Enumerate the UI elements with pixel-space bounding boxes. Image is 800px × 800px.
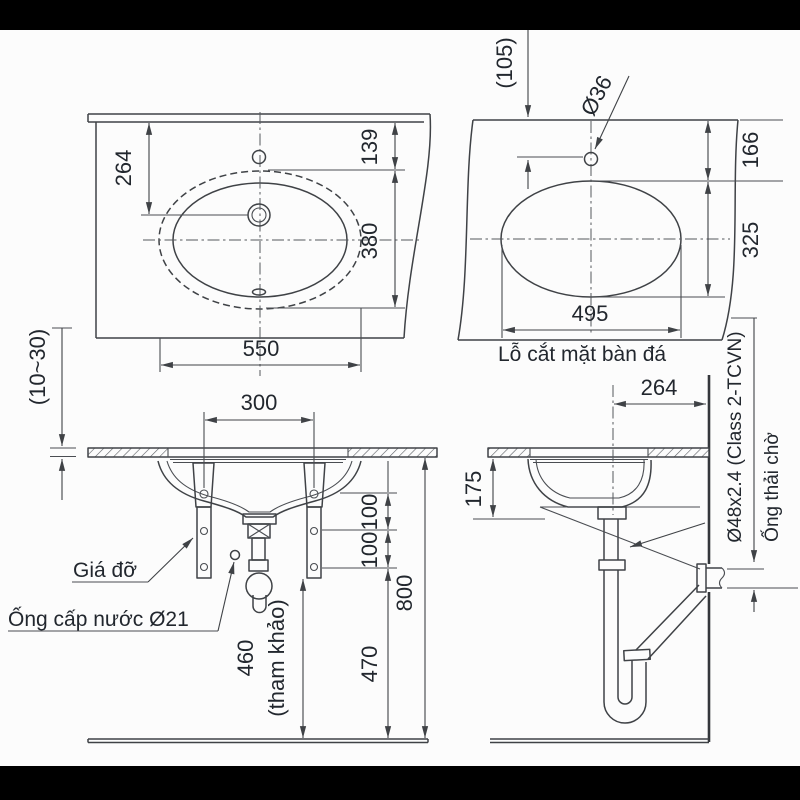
dim-bowl-below-counter: 175 — [461, 471, 486, 508]
side-view: 264 175 Ø48x2.4 (Class 2-TCVN) Ống thải … — [461, 318, 798, 743]
dim-counter-thickness: (10~30) — [25, 329, 50, 405]
waste-pipe-spec: Ø48x2.4 (Class 2-TCVN) — [725, 331, 746, 542]
plan-view: 264 139 380 550 — [88, 112, 430, 376]
break-line-right — [404, 114, 430, 338]
top-black-bar — [0, 0, 800, 30]
dim-ref-height: 460 — [233, 640, 258, 677]
dim-edge-to-drain: 264 — [111, 150, 136, 187]
counter-slab-section — [488, 448, 709, 457]
dim-bowl-depth: 380 — [357, 223, 382, 260]
floor-line — [490, 739, 709, 743]
waste-pipe-stub — [697, 564, 725, 592]
dim-hole-depth: 325 — [738, 222, 763, 259]
dim-edge-offset: (105) — [492, 37, 517, 88]
label-supply-leader — [218, 562, 234, 631]
cutout-caption: Lỗ cắt mặt bàn đá — [498, 343, 666, 366]
ext-lines — [727, 569, 798, 588]
bottom-black-bar — [0, 766, 800, 800]
break-line-left — [458, 120, 473, 340]
sink-bowl-side — [528, 459, 651, 507]
drain-hole — [248, 204, 270, 226]
sink-installation-drawing: 264 139 380 550 Ø36 — [0, 0, 800, 800]
cutout-view: Ø36 (105) 166 325 495 Lỗ cắt mặt bàn đá — [458, 30, 783, 366]
faucet-hole — [253, 151, 266, 164]
dim-bracket-spacing: 300 — [241, 390, 278, 415]
dim-trap-clearance: 470 — [357, 646, 382, 683]
dim-drain-to-wall: 264 — [641, 375, 678, 400]
dim-counter-height: 800 — [392, 575, 417, 612]
bracket-centerlines — [204, 412, 314, 488]
break-line-right — [722, 120, 738, 340]
label-waste-pipe: Ống thải chờ — [761, 432, 783, 542]
label-bracket: Giá đỡ — [73, 559, 137, 582]
floor-line — [88, 739, 428, 743]
dim-hole-width: 495 — [572, 301, 609, 326]
overflow-hole — [253, 289, 266, 295]
dim-edge-to-bowl: 139 — [357, 129, 382, 166]
sink-bowl-front — [158, 460, 361, 518]
dim-counter-thickness-lines — [50, 328, 76, 500]
label-bracket-leader — [148, 538, 193, 582]
dim-bowl-width: 550 — [243, 336, 280, 361]
slope-arrow — [630, 523, 705, 547]
supply-pipe-circle — [231, 551, 240, 560]
label-supply-pipe: Ống cấp nước Ø21 — [8, 607, 189, 631]
dim-edge-to-hole: 166 — [738, 132, 763, 169]
dim-ref-note: (tham khảo) — [264, 599, 289, 716]
dim-hole-pitch-upper: 100 — [357, 494, 382, 531]
faucet-hole-dia: Ø36 — [576, 71, 618, 119]
counter-slab-section — [88, 448, 437, 457]
drain-trap-front — [243, 514, 276, 613]
technical-drawing-page: 264 139 380 550 Ø36 — [0, 0, 800, 800]
dim-hole-pitch-lower: 100 — [357, 532, 382, 569]
front-view: 300 (10~30) 100 100 470 800 460 (tham kh… — [8, 328, 437, 743]
